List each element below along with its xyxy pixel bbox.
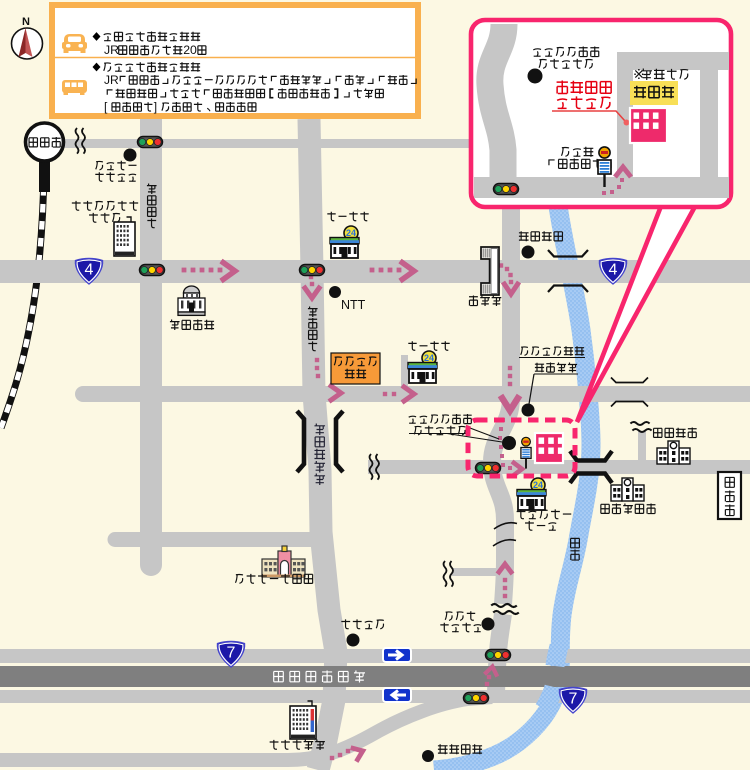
svg-text:N: N — [22, 16, 30, 28]
svg-text:4: 4 — [609, 262, 618, 279]
svg-text:20: 20 — [183, 43, 197, 57]
svg-text:4: 4 — [85, 262, 94, 279]
svg-text:※: ※ — [633, 66, 645, 82]
svg-text:]: ] — [154, 100, 157, 114]
svg-text:7: 7 — [569, 691, 578, 708]
svg-text:JR: JR — [104, 73, 119, 87]
svg-text:JR: JR — [104, 43, 119, 57]
svg-text:7: 7 — [227, 645, 236, 662]
svg-text:NTT: NTT — [341, 298, 366, 312]
